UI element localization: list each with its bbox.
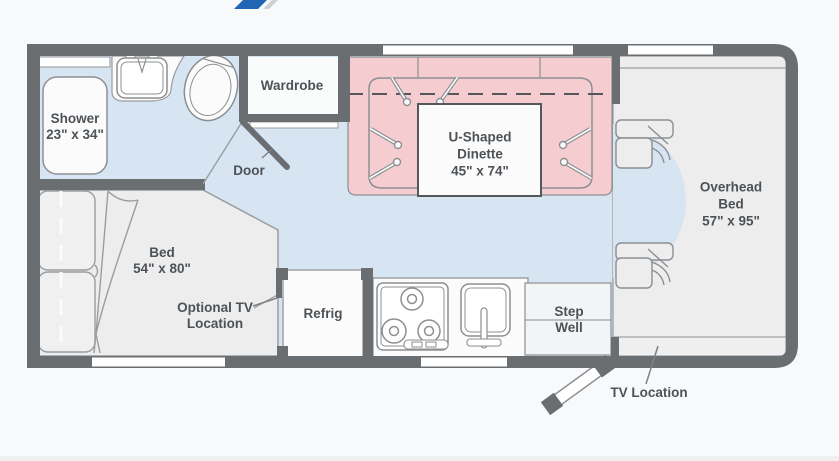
- optional-tv-mount: [276, 268, 282, 298]
- window-top-cab: [628, 46, 713, 55]
- bed-area: [38, 190, 279, 356]
- bed-head-cushion-1: [38, 191, 95, 270]
- cab-area: [613, 56, 786, 356]
- bathroom-wall: [27, 179, 205, 190]
- cab-partition-stub: [612, 56, 620, 104]
- window-bottom-bed: [92, 358, 225, 367]
- refrigerator: [283, 270, 363, 357]
- dinette-table: [418, 104, 541, 196]
- stepwell-wall: [611, 337, 619, 357]
- shower-pan: [43, 77, 107, 174]
- window-bottom-kitchen: [421, 358, 507, 367]
- bathroom-sink: [117, 55, 167, 98]
- tv-location-strip: [613, 337, 786, 356]
- step-well-box: [525, 283, 611, 355]
- fridge-post-right: [361, 268, 373, 280]
- page-bottom-divider: [0, 456, 839, 461]
- bed-head-cushion-2: [38, 272, 95, 352]
- floorplan-canvas: Shower 23" x 34" Wardrobe Door U-Shaped …: [0, 0, 839, 461]
- bath-cabinet: [38, 57, 110, 67]
- dinette-slideout: [348, 57, 612, 196]
- wardrobe-wall-right: [338, 56, 350, 122]
- stove: [377, 283, 448, 350]
- wardrobe-wall-bottom: [239, 114, 350, 122]
- floorplan-drawing: [0, 0, 839, 461]
- wardrobe-door-track: [250, 122, 338, 128]
- wardrobe-wall-left: [239, 56, 248, 122]
- window-top-dinette: [383, 46, 573, 55]
- kitchen-area: [283, 270, 611, 357]
- brand-logo-fragment: [234, 0, 278, 9]
- wardrobe-interior: [248, 57, 338, 114]
